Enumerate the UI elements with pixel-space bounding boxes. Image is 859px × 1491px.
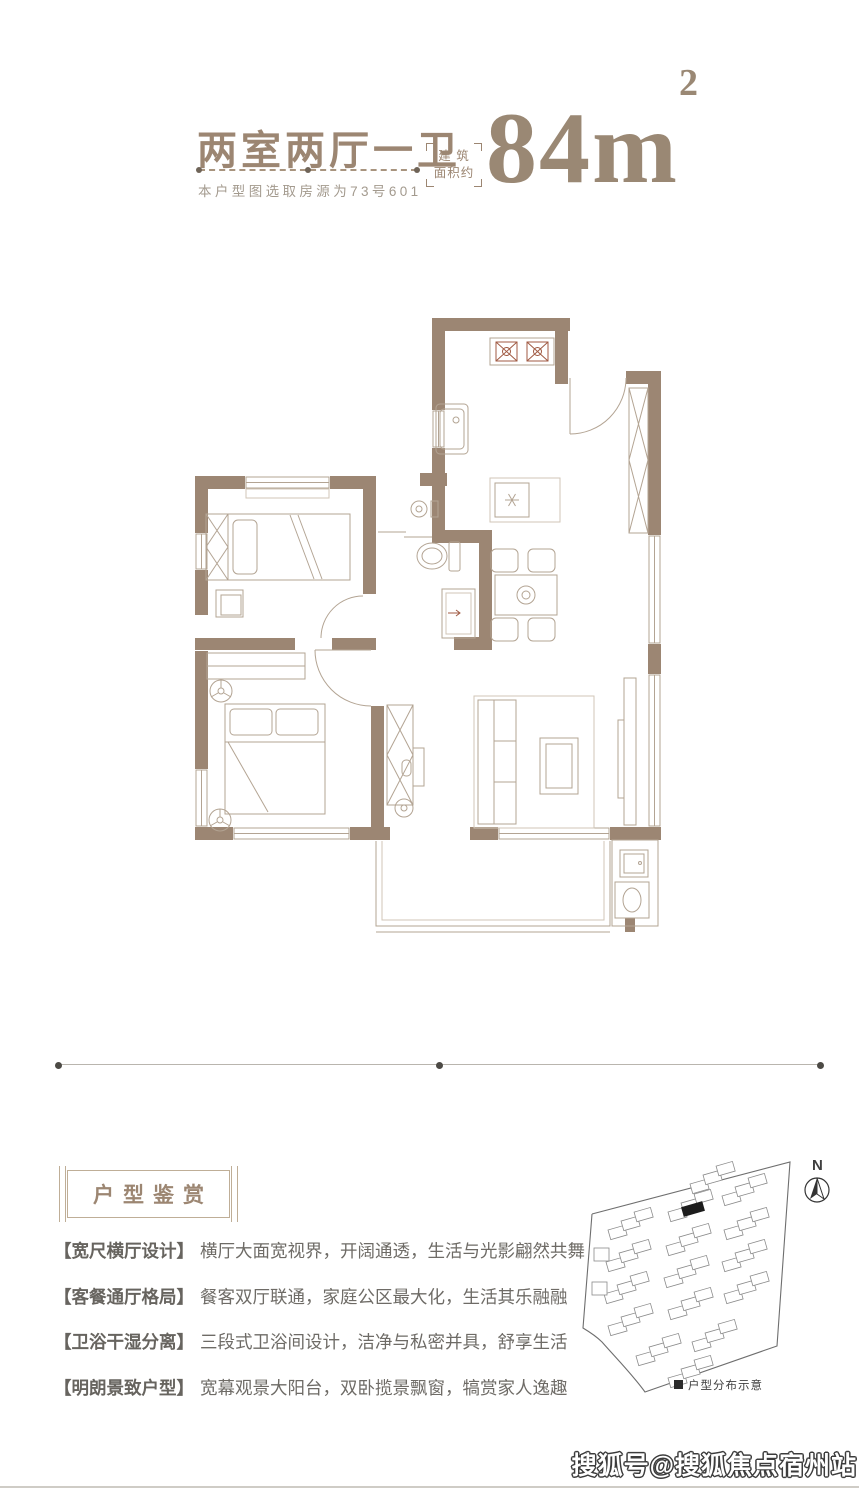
watermark: 搜狐号@搜狐焦点宿州站: [572, 1446, 857, 1482]
feature-item: 【宽尺横厅设计】横厅大面宽视界，开阔通透，生活与光影翩然共舞: [54, 1237, 585, 1265]
section-heading-label: 户型鉴赏: [93, 1184, 213, 1207]
fridge-icon: [490, 478, 560, 522]
feature-text: 三段式卫浴间设计，洁净与私密并具，舒享生活: [200, 1332, 568, 1352]
walls: [195, 318, 661, 932]
floor-plan-drawing: [192, 308, 672, 968]
dot: [436, 1062, 443, 1069]
svg-text:N: N: [812, 1157, 823, 1174]
site-plan: N 户型分布示意: [572, 1152, 834, 1406]
feature-text: 横厅大面宽视界，开阔通透，生活与光影翩然共舞: [200, 1241, 585, 1261]
toilet-icon: [417, 542, 460, 571]
area-label-line2: 面积约: [433, 165, 475, 182]
feature-tag: 【客餐通厅格局】: [54, 1287, 194, 1307]
closet-hanger-icon: [207, 653, 305, 679]
nightstand-icon: [216, 590, 243, 617]
unit-source-note: 本户型图选取房源为73号601: [198, 180, 422, 200]
shower-icon: [442, 589, 475, 638]
layout-title: 两室两厅一卫: [197, 118, 461, 176]
feature-item: 【卫浴干湿分离】三段式卫浴间设计，洁净与私密并具，舒享生活: [54, 1328, 585, 1356]
entry-door-arc-icon: [570, 378, 626, 434]
feature-list: 【宽尺横厅设计】横厅大面宽视界，开阔通透，生活与光影翩然共舞 【客餐通厅格局】餐…: [54, 1237, 585, 1419]
single-bed-icon: [206, 514, 350, 580]
dot: [305, 167, 311, 173]
feature-item: 【明朗景致户型】宽幕观景大阳台，双卧揽景飘窗，犒赏家人逸趣: [54, 1374, 585, 1402]
section-heading: 户型鉴赏: [67, 1170, 230, 1218]
area-label: 建 筑 面积约: [426, 143, 482, 187]
washing-machine-icon: [615, 882, 649, 918]
area-label-corners: 建 筑 面积约: [433, 148, 475, 182]
feature-tag: 【明朗景致户型】: [54, 1378, 194, 1398]
area-label-line1: 建 筑: [433, 148, 475, 165]
flyer-page: 两室两厅一卫 本户型图选取房源为73号601 建 筑 面积约 84m2: [0, 0, 859, 1491]
feature-tag: 【卫浴干湿分离】: [54, 1332, 194, 1352]
feature-text: 餐客双厅联通，家庭公区最大化，生活其乐融融: [200, 1287, 568, 1307]
double-bed-icon: [225, 704, 325, 814]
dining-table-icon: [491, 549, 557, 641]
dashed-underline: [199, 169, 417, 171]
wardrobe-icon: [387, 705, 413, 805]
feature-item: 【客餐通厅格局】餐客双厅联通，家庭公区最大化，生活其乐融融: [54, 1283, 585, 1311]
svg-text:户型分布示意: 户型分布示意: [688, 1378, 763, 1392]
coffee-table-icon: [540, 738, 578, 794]
site-buildings: [592, 1161, 772, 1387]
bottom-rule: [0, 1486, 859, 1488]
site-legend: 户型分布示意: [674, 1378, 763, 1392]
desk-icon: [395, 748, 424, 817]
stove-icon: [490, 338, 554, 365]
north-compass-icon: N: [805, 1157, 829, 1202]
cabinet-icon: [629, 388, 648, 533]
section-divider: [57, 1064, 822, 1065]
area-exponent: 2: [679, 64, 700, 102]
bathroom-sink-icon: [612, 840, 658, 926]
area-value: 84m2: [486, 98, 700, 200]
feature-text: 宽幕观景大阳台，双卧揽景飘窗，犒赏家人逸趣: [200, 1378, 568, 1398]
tv-icon: [618, 720, 624, 798]
sofa-icon: [474, 696, 594, 828]
balcony-railing-icon: [376, 841, 610, 932]
feature-tag: 【宽尺横厅设计】: [54, 1241, 194, 1261]
area-number: 84m: [486, 92, 679, 205]
ceiling-fan-icon: [209, 680, 232, 831]
